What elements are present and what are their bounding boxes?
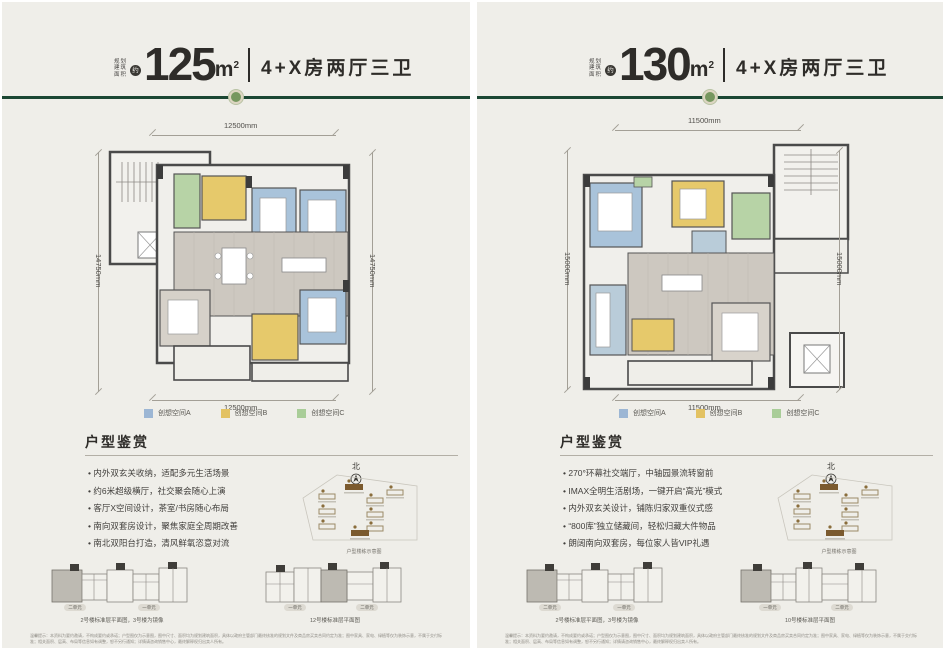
balcony-south-2 — [252, 363, 348, 381]
siteplan-caption: 户型楼栋示意图 — [774, 548, 904, 555]
section-underline — [560, 455, 933, 456]
bullet: IMAX全明生活剧场，一键开启“高光”模式 — [563, 483, 778, 501]
legend-item: 创想空间C — [772, 408, 819, 418]
unit-type-text: 4+X房两厅三卫 — [261, 53, 414, 84]
sofa — [282, 258, 326, 272]
room-yellow-B — [202, 176, 246, 220]
bullet: “800库”独立储藏间，轻松归藏大件物品 — [563, 518, 778, 536]
dining-table — [662, 275, 702, 291]
bed — [308, 200, 336, 236]
dim-line-bottom — [615, 400, 801, 401]
legend-label: 创想空间A — [633, 408, 666, 418]
legend-item: 创想空间C — [297, 408, 344, 418]
legend: 创想空间A 创想空间B 创想空间C — [619, 408, 819, 418]
approx-badge: 约 — [130, 65, 141, 76]
unit-badge-left: 一单元 — [763, 604, 777, 611]
dim-line-top — [152, 135, 336, 136]
feature-bullets: 270°环幕社交端厅，中轴园景流转窗前 IMAX全明生活剧场，一键开启“高光”模… — [563, 465, 778, 553]
room-green-C — [732, 193, 770, 239]
bullet: 南向双套房设计，聚焦家庭全周期改善 — [88, 518, 303, 536]
legend-item: 创想空间A — [619, 408, 666, 418]
legend-swatch-c — [772, 409, 781, 418]
bed — [598, 193, 632, 231]
highlighted-unit — [52, 570, 82, 602]
unit-badge-right: 一单元 — [617, 604, 631, 611]
floorplan-125 — [102, 140, 372, 402]
bed — [308, 298, 336, 332]
divider-ornament-icon — [229, 90, 243, 104]
site-buildings — [793, 479, 879, 539]
legend-swatch-a — [144, 409, 153, 418]
legend-label: 创想空间A — [158, 408, 191, 418]
legend-item: 创想空间B — [696, 408, 743, 418]
site-building-highlight — [826, 530, 844, 536]
bullet: 南北双阳台打造，清风鲜氧恣意对流 — [88, 535, 303, 553]
area-unit: m2 — [690, 58, 714, 84]
flyer-page-130: 规划 建筑 面积 约 130 m2 4+X房两厅三卫 — [477, 2, 943, 648]
bullet: 270°环幕社交端厅，中轴园景流转窗前 — [563, 465, 778, 483]
counter — [596, 293, 610, 347]
dim-line-bottom — [152, 400, 336, 401]
room-green-small — [634, 177, 652, 187]
dim-top-label: 11500mm — [688, 116, 721, 125]
floorplate-caption-1: 2号楼标准层平面图，3号楼为镜像 — [47, 616, 197, 624]
floorplate-diagram-1: 二单元 一单元 — [525, 560, 665, 612]
unit-badges: 一单元 二单元 — [284, 604, 378, 611]
room-yellow-B2 — [632, 319, 674, 351]
legend-swatch-a — [619, 409, 628, 418]
header-divider — [723, 48, 725, 82]
legend-item: 创想空间A — [144, 408, 191, 418]
bullet: 朗阔南向双套房，每位家人皆VIP礼遇 — [563, 535, 778, 553]
dim-right-label: 15000mm — [835, 252, 844, 285]
divider-ornament-icon — [703, 90, 717, 104]
north-label: 北 — [825, 461, 837, 472]
site-buildings — [318, 479, 404, 539]
dim-right-label: 14750mm — [368, 254, 377, 287]
unit-badge-right: 二单元 — [360, 604, 374, 611]
highlighted-unit — [527, 570, 557, 602]
section-title: 户型鉴赏 — [560, 432, 624, 452]
floorplate-diagram-2: 一单元 二单元 — [264, 560, 404, 612]
plan-header: 规划 建筑 面积 约 125 m2 4+X房两厅三卫 — [114, 36, 414, 84]
balcony-south — [628, 361, 752, 385]
unit-badge-left: 一单元 — [288, 604, 302, 611]
flyer-page-125: 规划 建筑 面积 约 125 m2 4+X房两厅三卫 — [2, 2, 470, 648]
room-green-C — [174, 174, 200, 228]
site-building-highlight — [351, 530, 369, 536]
dim-line-top — [615, 130, 801, 131]
area-label: 规划 建筑 面积 — [589, 59, 602, 85]
highlighted-unit — [741, 570, 771, 602]
approx-badge: 约 — [605, 65, 616, 76]
floorplate-diagram-2: 一单元 二单元 — [739, 560, 879, 612]
dim-left-label: 14750mm — [94, 254, 103, 287]
area-unit: m2 — [215, 58, 239, 84]
area-label-line: 面积 — [114, 72, 127, 79]
site-building-highlight — [820, 484, 838, 490]
north-label: 北 — [350, 461, 362, 472]
unit-badges: 二单元 一单元 — [539, 604, 635, 611]
legal-disclaimer: 温馨提示：本资料为要约邀请，不构成要约或承诺；户型图仅为示意图，图中尺寸、面积均… — [30, 633, 442, 646]
unit-badge-left: 二单元 — [543, 604, 557, 611]
dining-table — [222, 248, 246, 284]
section-title: 户型鉴赏 — [85, 432, 149, 452]
siteplan-map — [774, 472, 904, 546]
siteplan-caption: 户型楼栋示意图 — [299, 548, 429, 555]
legend: 创想空间A 创想空间B 创想空间C — [144, 408, 344, 418]
legend-label: 创想空间C — [786, 408, 819, 418]
area-value: 130 — [619, 44, 690, 84]
floorplate-caption-1: 2号楼标准层平面图，3号楼为镜像 — [522, 616, 672, 624]
floorplate-caption-2: 12号楼标准层平面图 — [260, 616, 410, 624]
dim-top-label: 12500mm — [224, 121, 257, 130]
siteplan-map — [299, 472, 429, 546]
header-divider — [248, 48, 250, 82]
bed — [168, 300, 198, 334]
unit-badge-left: 二单元 — [68, 604, 82, 611]
legend-swatch-c — [297, 409, 306, 418]
legend-swatch-b — [221, 409, 230, 418]
dim-left-label: 15000mm — [563, 252, 572, 285]
feature-bullets: 内外双玄关收纳，适配多元生活场景 约6米超级横厅，社交聚会随心上演 客厅X空间设… — [88, 465, 303, 553]
area-label-line: 面积 — [589, 72, 602, 79]
highlighted-unit — [321, 570, 347, 602]
bullet: 客厅X空间设计，茶室/书房随心布局 — [88, 500, 303, 518]
bullet: 约6米超级横厅，社交聚会随心上演 — [88, 483, 303, 501]
site-building-highlight — [345, 484, 363, 490]
balcony-south — [174, 346, 250, 380]
floorplate-caption-2: 10号楼标准层平面图 — [735, 616, 885, 624]
section-underline — [85, 455, 458, 456]
unit-badges: 一单元 二单元 — [759, 604, 853, 611]
bullet: 内外双玄关设计，铺陈归家双重仪式感 — [563, 500, 778, 518]
plan-header: 规划 建筑 面积 约 130 m2 4+X房两厅三卫 — [589, 36, 889, 84]
unit-badge-right: 一单元 — [142, 604, 156, 611]
area-label: 规划 建筑 面积 — [114, 59, 127, 85]
floorplate-diagram-1: 二单元 一单元 — [50, 560, 190, 612]
unit-type-text: 4+X房两厅三卫 — [736, 53, 889, 84]
bed — [722, 313, 758, 351]
unit-badge-right: 二单元 — [835, 604, 849, 611]
legend-label: 创想空间B — [710, 408, 743, 418]
bullet: 内外双玄关收纳，适配多元生活场景 — [88, 465, 303, 483]
room-yellow-B2 — [252, 314, 298, 360]
legend-item: 创想空间B — [221, 408, 268, 418]
bed — [260, 198, 286, 232]
unit-badges: 二单元 一单元 — [64, 604, 160, 611]
legend-label: 创想空间C — [311, 408, 344, 418]
area-value: 125 — [144, 44, 215, 84]
floorplan-130 — [572, 135, 857, 405]
legend-swatch-b — [696, 409, 705, 418]
legal-disclaimer: 温馨提示：本资料为要约邀请，不构成要约或承诺；户型图仅为示意图，图中尺寸、面积均… — [505, 633, 917, 646]
legend-label: 创想空间B — [235, 408, 268, 418]
